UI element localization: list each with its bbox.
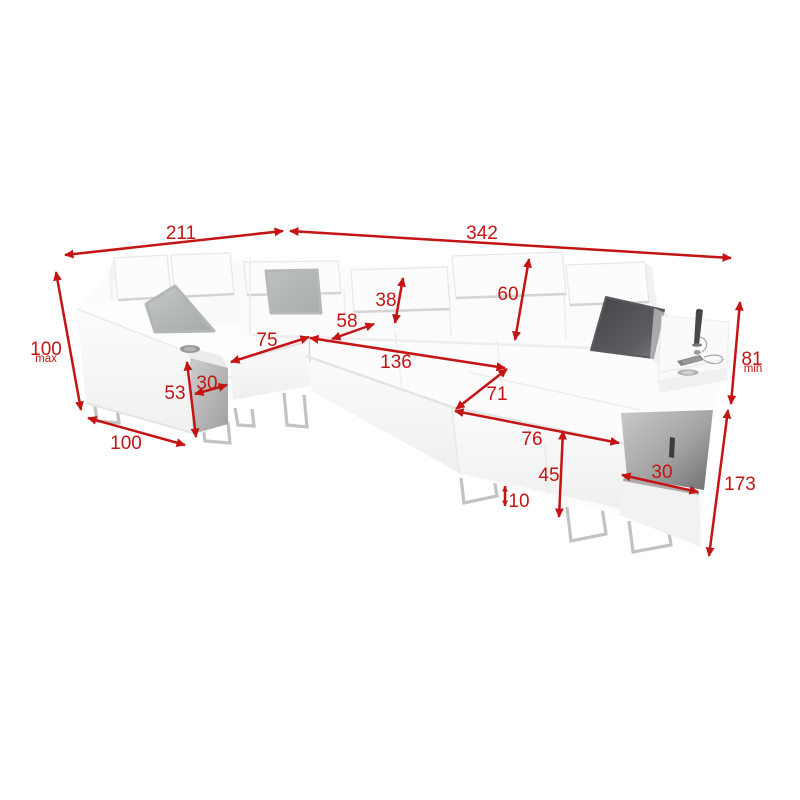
svg-text:min: min <box>744 363 763 375</box>
svg-text:100: 100 <box>110 433 142 454</box>
svg-text:53: 53 <box>164 383 185 404</box>
svg-text:30: 30 <box>651 462 672 483</box>
svg-text:75: 75 <box>256 330 277 351</box>
svg-text:71: 71 <box>486 384 507 405</box>
svg-text:136: 136 <box>380 352 412 373</box>
svg-text:45: 45 <box>538 465 559 486</box>
svg-text:342: 342 <box>466 223 498 244</box>
svg-text:76: 76 <box>521 429 542 450</box>
svg-text:60: 60 <box>497 284 518 305</box>
svg-text:211: 211 <box>166 223 196 244</box>
svg-text:max: max <box>35 353 57 365</box>
svg-text:30: 30 <box>196 373 217 394</box>
svg-text:58: 58 <box>336 311 357 332</box>
svg-text:173: 173 <box>724 474 756 495</box>
svg-text:10: 10 <box>508 491 529 512</box>
svg-text:38: 38 <box>375 290 396 311</box>
